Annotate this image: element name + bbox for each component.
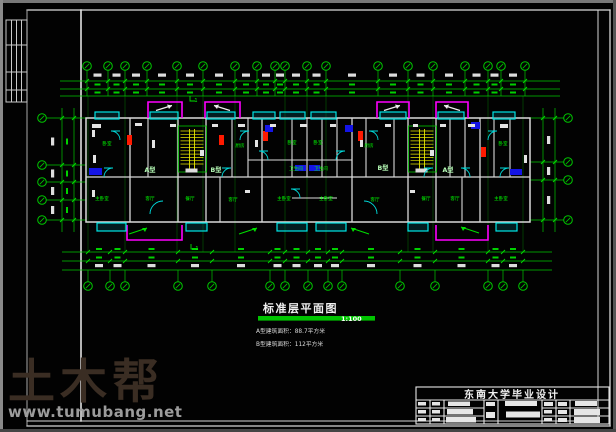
axis-bubble-mark	[85, 64, 89, 68]
illegible-text-smudge	[574, 417, 600, 423]
axis-bubble-mark	[40, 180, 44, 184]
illegible-text-smudge	[418, 410, 426, 414]
dim-text-smudge	[368, 248, 374, 250]
dim-text-smudge	[332, 248, 338, 250]
dim-text-smudge	[149, 248, 155, 250]
window	[277, 223, 307, 231]
axis-bubble-mark	[123, 64, 127, 68]
axis-bubble-mark	[283, 64, 287, 68]
axis-bubble-mark	[123, 284, 127, 288]
title-block: 东南大学毕业设计	[416, 387, 609, 424]
window	[316, 223, 346, 231]
axis-bubble-mark	[324, 64, 328, 68]
dim-text-smudge	[159, 92, 165, 94]
axis-bubble-mark	[566, 178, 570, 182]
illegible-text-smudge	[448, 402, 470, 407]
dim-text-smudge	[293, 92, 299, 94]
furniture-smudge	[500, 124, 508, 128]
axis-bubble-mark	[176, 284, 180, 288]
dim-text-smudge	[493, 248, 499, 250]
entrance-arrow-head	[351, 228, 356, 232]
unit-type-label: B型	[211, 166, 223, 174]
room-label: 卧室	[313, 139, 323, 146]
dim-text-smudge	[51, 206, 54, 214]
window	[253, 112, 275, 119]
watermark: 土木帮 www.tumubang.net	[8, 355, 182, 421]
red-fixture	[219, 135, 224, 145]
dim-text-smudge	[293, 264, 301, 267]
axis-bubble-mark	[406, 64, 410, 68]
stair-outline	[179, 126, 207, 172]
illegible-text-smudge	[558, 410, 567, 414]
dim-text-smudge	[414, 264, 422, 267]
axis-bubble-mark	[306, 284, 310, 288]
room-label: 卧室	[498, 140, 508, 147]
dim-text-smudge	[547, 167, 550, 175]
dim-text-smudge	[66, 171, 68, 177]
furniture-smudge	[238, 124, 245, 127]
dim-text-smudge	[547, 196, 550, 204]
axis-bubble-mark	[566, 160, 570, 164]
dim-text-smudge	[51, 187, 54, 195]
door-swing	[150, 201, 163, 214]
furniture-smudge	[200, 150, 204, 156]
dim-text-smudge	[547, 136, 550, 144]
dim-text-smudge	[293, 84, 299, 86]
dim-text-smudge	[367, 264, 375, 267]
axis-bubble-mark	[40, 116, 44, 120]
dim-text-smudge	[510, 84, 516, 86]
room-label: 卧室	[102, 140, 112, 147]
dim-text-smudge	[418, 92, 424, 94]
door-swing	[500, 168, 509, 177]
window	[496, 223, 517, 231]
dim-text-smudge	[277, 84, 283, 86]
dim-text-smudge	[96, 257, 102, 259]
area-note-b: B型建筑面积：112平方米	[256, 340, 323, 348]
furniture-smudge	[255, 140, 258, 147]
room-label: 主卧室	[319, 195, 333, 202]
axis-bubble-mark	[501, 284, 505, 288]
dim-text-smudge	[331, 264, 339, 267]
dim-text-smudge	[96, 248, 102, 250]
dim-text-smudge	[216, 92, 222, 94]
dim-text-smudge	[493, 257, 499, 259]
illegible-text-smudge	[432, 402, 440, 406]
door-swing	[488, 131, 497, 140]
room-label: 主卧室	[494, 195, 508, 202]
cad-screenshot: 卧室卧室卧室卧室厨房厨房卫生间卫生间主卧室客厅餐厅客厅主卧室主卧室客厅餐厅客厅主…	[0, 0, 616, 432]
dim-text-smudge	[262, 74, 270, 77]
axis-bubble-mark	[433, 284, 437, 288]
illegible-text-smudge	[544, 418, 552, 422]
furniture-smudge	[430, 150, 434, 156]
dim-text-smudge	[133, 92, 139, 94]
furniture-smudge	[170, 124, 176, 127]
illegible-text-smudge	[506, 412, 540, 418]
axis-bubble-mark	[499, 64, 503, 68]
dim-text-smudge	[238, 248, 244, 250]
dim-text-smudge	[294, 248, 300, 250]
dim-text-smudge	[314, 92, 320, 94]
balcony-bottom	[127, 225, 182, 240]
dim-text-smudge	[510, 92, 516, 94]
blue-fixture	[345, 125, 353, 132]
dim-text-smudge	[113, 74, 121, 77]
illegible-text-smudge	[418, 418, 426, 422]
dim-text-smudge	[115, 248, 121, 250]
axis-bubble-mark	[175, 64, 179, 68]
dim-text-smudge	[263, 84, 269, 86]
axis-bubble-mark	[108, 284, 112, 288]
furniture-smudge	[385, 124, 391, 127]
axis-bubble-mark	[40, 163, 44, 167]
dim-text-smudge	[415, 257, 421, 259]
dim-text-smudge	[492, 92, 498, 94]
room-label: 客厅	[370, 196, 380, 203]
window	[311, 112, 336, 119]
window	[95, 112, 119, 119]
illegible-text-smudge	[505, 401, 537, 406]
dim-text-smudge	[390, 84, 396, 86]
illegible-text-smudge	[486, 402, 495, 406]
dim-text-smudge	[114, 92, 120, 94]
window	[280, 112, 305, 119]
door-swing	[104, 168, 113, 177]
room-label: 主卧室	[277, 195, 291, 202]
dim-text-smudge	[132, 74, 140, 77]
dim-text-smudge	[243, 92, 249, 94]
furniture-smudge	[93, 155, 96, 163]
window	[186, 223, 207, 231]
dim-text-smudge	[216, 84, 222, 86]
room-label: 卫生间	[289, 165, 303, 172]
unit-type-label: B型	[378, 164, 390, 172]
watermark-logo: 土木帮	[8, 355, 164, 410]
title-block-illegible-text	[418, 401, 600, 423]
axis-bubble-mark	[283, 284, 287, 288]
dim-text-smudge	[243, 84, 249, 86]
section-mark-number: 1	[195, 246, 198, 252]
dim-text-smudge	[294, 257, 300, 259]
axis-bubble-mark	[326, 284, 330, 288]
furniture-smudge	[212, 124, 218, 127]
dim-text-smudge	[148, 264, 156, 267]
blue-fixture	[510, 169, 522, 175]
door-swing	[291, 189, 300, 198]
dim-text-smudge	[349, 84, 355, 86]
illegible-text-smudge	[418, 402, 426, 406]
axis-bubble-mark	[521, 284, 525, 288]
furniture-smudge	[270, 124, 276, 127]
drawing-scale: 1:100	[341, 315, 362, 323]
room-label: 卧室	[287, 139, 297, 146]
dim-text-smudge	[292, 74, 300, 77]
axis-bubble-mark	[340, 284, 344, 288]
dim-text-smudge	[66, 139, 68, 145]
furniture-smudge	[135, 123, 142, 126]
dim-text-smudge	[191, 264, 199, 267]
dim-text-smudge	[315, 248, 321, 250]
dim-text-smudge	[242, 74, 250, 77]
entrance-arrow-head	[252, 228, 257, 232]
dim-text-smudge	[133, 84, 139, 86]
axis-bubble-mark	[106, 64, 110, 68]
dim-text-smudge	[237, 264, 245, 267]
dim-text-smudge	[275, 257, 281, 259]
door-swing	[369, 131, 378, 140]
dim-text-smudge	[313, 74, 321, 77]
unit-type-label: A型	[443, 166, 455, 174]
dim-text-smudge	[492, 84, 498, 86]
furniture-smudge	[92, 124, 101, 128]
axis-bubble-mark	[233, 64, 237, 68]
room-label: 厨房	[235, 142, 245, 149]
furniture-smudge	[410, 190, 415, 193]
dim-text-smudge	[445, 74, 453, 77]
dim-text-smudge	[474, 92, 480, 94]
furniture-smudge	[468, 124, 475, 127]
dim-text-smudge	[238, 257, 244, 259]
drawing-title-group: 标准层平面图 1:100 A型建筑面积：88.7平方米 B型建筑面积：112平方…	[256, 301, 375, 348]
axis-bubble-mark	[486, 284, 490, 288]
dim-text-smudge	[187, 84, 193, 86]
window	[380, 112, 406, 119]
dim-text-smudge	[314, 84, 320, 86]
room-label: 餐厅	[185, 195, 195, 202]
dim-text-smudge	[51, 170, 54, 178]
window	[493, 112, 515, 119]
window	[207, 112, 235, 119]
dim-text-smudge	[95, 84, 101, 86]
dim-text-smudge	[114, 264, 122, 267]
illegible-text-smudge	[574, 409, 600, 415]
room-label: 厨房	[364, 142, 374, 149]
axis-bubble-mark	[376, 64, 380, 68]
room-label: 卫生间	[314, 165, 328, 172]
axis-bubble-mark	[86, 284, 90, 288]
red-fixture	[127, 135, 132, 145]
dim-text-smudge	[446, 84, 452, 86]
dim-text-smudge	[149, 257, 155, 259]
door-swing	[259, 151, 268, 160]
entrance-arrow-head	[461, 227, 466, 231]
illegible-text-smudge	[486, 412, 495, 418]
axis-bubble-mark	[398, 284, 402, 288]
blue-fixture	[89, 168, 102, 175]
drawing-title: 标准层平面图	[262, 301, 338, 315]
dim-text-smudge	[66, 207, 68, 213]
red-fixture	[481, 147, 486, 157]
dim-text-smudge	[459, 257, 465, 259]
dim-text-smudge	[215, 74, 223, 77]
furniture-smudge	[152, 140, 155, 148]
furniture-smudge	[245, 190, 250, 193]
furniture-smudge	[92, 130, 95, 137]
axis-bubble-mark	[255, 64, 259, 68]
dim-text-smudge	[368, 257, 374, 259]
axis-bubble-mark	[486, 64, 490, 68]
dim-text-smudge	[277, 92, 283, 94]
axis-bubble-mark	[431, 64, 435, 68]
room-label: 餐厅	[421, 195, 431, 202]
illegible-text-smudge	[432, 418, 440, 422]
illegible-text-smudge	[558, 402, 567, 406]
illegible-text-smudge	[558, 418, 567, 422]
stair-landing	[186, 169, 198, 173]
axis-dimension-layer	[38, 62, 573, 291]
unit-type-label: A型	[145, 166, 157, 174]
axis-bubble-mark	[201, 64, 205, 68]
furniture-smudge	[524, 155, 527, 163]
dim-text-smudge	[492, 264, 500, 267]
window	[150, 112, 178, 119]
dim-text-smudge	[314, 264, 322, 267]
dim-text-smudge	[349, 92, 355, 94]
dim-text-smudge	[415, 248, 421, 250]
dim-text-smudge	[459, 248, 465, 250]
illegible-text-smudge	[544, 402, 553, 406]
window	[408, 223, 428, 231]
dim-text-smudge	[510, 257, 516, 259]
dim-text-smudge	[491, 74, 499, 77]
axis-bubble-mark	[210, 284, 214, 288]
axis-bubble-mark	[40, 218, 44, 222]
furniture-smudge	[300, 124, 307, 127]
dim-text-smudge	[51, 138, 54, 146]
axis-bubble-mark	[40, 198, 44, 202]
dim-text-smudge	[510, 248, 516, 250]
dim-text-smudge	[276, 74, 284, 77]
dim-text-smudge	[114, 84, 120, 86]
corner-grid-table	[6, 20, 27, 102]
entrance-arrow-head	[142, 228, 147, 232]
dim-text-smudge	[95, 92, 101, 94]
axis-bubble-mark	[566, 218, 570, 222]
furniture-smudge	[413, 124, 418, 127]
room-label: 客厅	[145, 195, 155, 202]
furniture-smudge	[92, 190, 95, 197]
illegible-text-smudge	[447, 409, 473, 415]
axis-bubble-mark	[273, 64, 277, 68]
illegible-text-smudge	[432, 410, 440, 414]
dim-text-smudge	[348, 74, 356, 77]
dim-text-smudge	[417, 74, 425, 77]
dim-text-smudge	[158, 74, 166, 77]
axis-bubble-mark	[268, 284, 272, 288]
dim-text-smudge	[332, 257, 338, 259]
dim-text-smudge	[473, 74, 481, 77]
room-label: 主卧室	[95, 195, 109, 202]
room-label: 客厅	[450, 195, 460, 202]
dim-text-smudge	[95, 264, 103, 267]
furniture-smudge	[330, 124, 336, 127]
dim-text-smudge	[159, 84, 165, 86]
door-swing	[222, 168, 231, 177]
dim-text-smudge	[186, 74, 194, 77]
area-note-a: A型建筑面积：88.7平方米	[256, 327, 325, 335]
axis-bubble-mark	[305, 64, 309, 68]
illegible-text-smudge	[544, 410, 552, 414]
red-fixture	[358, 131, 363, 141]
furniture-smudge	[360, 140, 363, 147]
dim-text-smudge	[315, 257, 321, 259]
dim-text-smudge	[389, 74, 397, 77]
dim-text-smudge	[115, 257, 121, 259]
axis-bubble-mark	[463, 64, 467, 68]
watermark-site: www.tumubang.net	[8, 403, 182, 421]
illegible-text-smudge	[446, 417, 476, 423]
dim-text-smudge	[474, 84, 480, 86]
illegible-text-smudge	[575, 401, 597, 406]
dim-text-smudge	[509, 74, 517, 77]
window	[438, 112, 464, 119]
dim-text-smudge	[509, 264, 517, 267]
stair-outline	[409, 126, 437, 172]
dim-text-smudge	[263, 92, 269, 94]
dim-text-smudge	[192, 257, 198, 259]
dim-text-smudge	[275, 248, 281, 250]
axis-bubble-mark	[523, 64, 527, 68]
floor-plan-drawing: 卧室卧室卧室卧室厨房厨房卫生间卫生间主卧室客厅餐厅客厅主卧室主卧室客厅餐厅客厅主…	[0, 0, 616, 432]
dim-text-smudge	[458, 264, 466, 267]
furniture-smudge	[440, 124, 446, 127]
window	[97, 223, 126, 231]
title-block-header: 东南大学毕业设计	[464, 388, 560, 401]
dim-text-smudge	[446, 92, 452, 94]
door-swing	[111, 131, 120, 140]
axis-bubble-mark	[566, 116, 570, 120]
axis-bubble-mark	[145, 64, 149, 68]
room-label: 客厅	[228, 196, 238, 203]
dim-text-smudge	[187, 92, 193, 94]
red-fixture	[263, 131, 268, 141]
section-mark-number: 1	[194, 98, 197, 104]
dim-text-smudge	[390, 92, 396, 94]
dim-text-smudge	[66, 188, 68, 194]
dim-text-smudge	[274, 264, 282, 267]
dim-text-smudge	[94, 74, 102, 77]
dim-text-smudge	[418, 84, 424, 86]
